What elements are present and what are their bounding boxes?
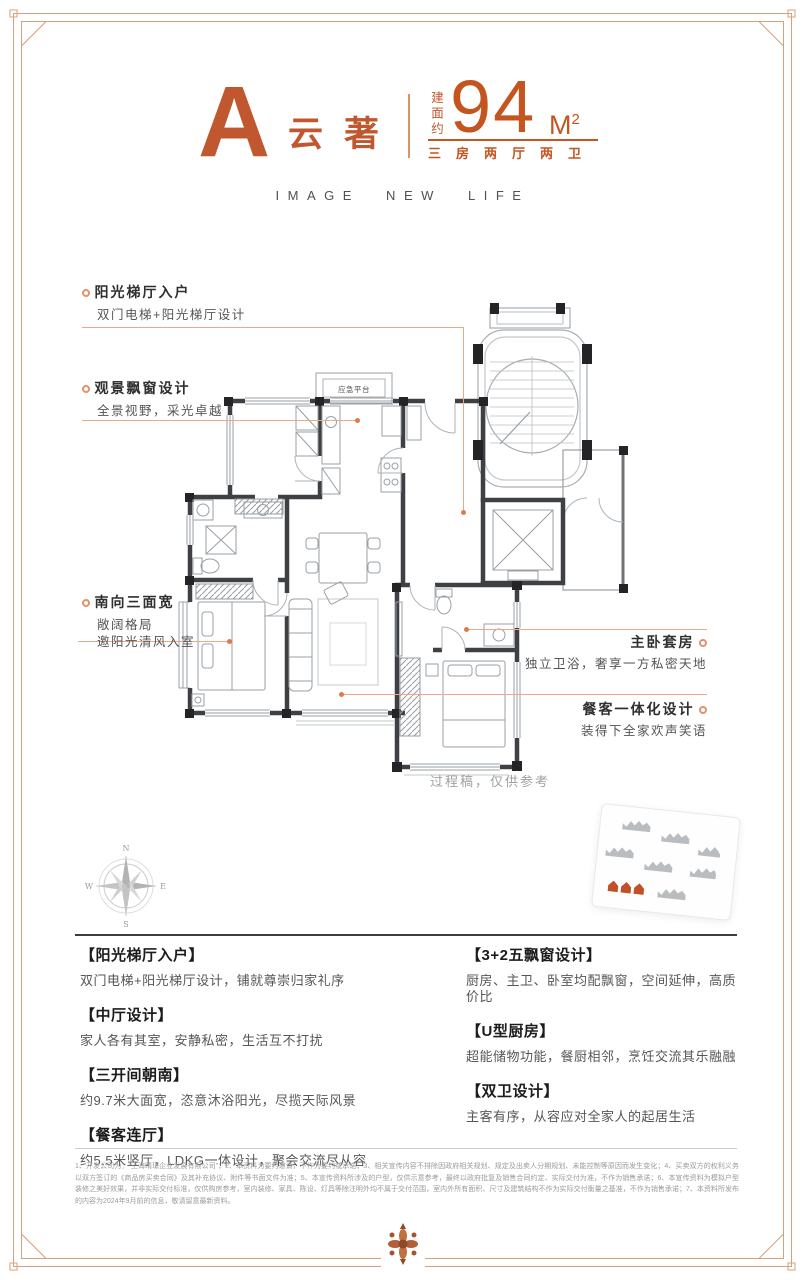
corridor xyxy=(563,450,623,590)
compass-w: W xyxy=(85,882,94,891)
section-divider-top xyxy=(75,934,737,936)
site-map-highlight-building xyxy=(608,880,645,895)
callout-entry-lobby: 阳光梯厅入户 双门电梯+阳光梯厅设计 xyxy=(82,282,246,324)
leader-4-dot xyxy=(464,627,469,632)
poster-page: A 云著 建面约 94 M2 三房两厅两卫 IMAGE NEW LIFE xyxy=(0,0,805,1280)
feature-item: 【中厅设计】 家人各有其室，安静私密，生活互不打扰 xyxy=(80,1004,440,1049)
legal-disclaimer: 1、开发公司为：“上海晴璟企业发展有限公司”；2、本资料为要约邀请，不作为要约或… xyxy=(75,1161,739,1207)
leader-5-dot xyxy=(339,692,344,697)
callout-ring-icon xyxy=(699,706,707,714)
compass-n: N xyxy=(123,844,130,853)
area-value: 94 xyxy=(450,70,536,144)
feature-item: 【双卫设计】 主客有序，从容应对全家人的起居生活 xyxy=(466,1080,744,1125)
brand-emblem xyxy=(381,1220,425,1268)
callout-ring-icon xyxy=(82,289,90,297)
leader-5-h xyxy=(341,694,707,695)
feature-item: 【三开间朝南】 约9.7米大面宽，恣意沐浴阳光，尽揽天际风景 xyxy=(80,1064,440,1109)
callout-ring-icon xyxy=(82,599,90,607)
flower-ornament-icon xyxy=(384,1223,422,1265)
elevator xyxy=(483,500,563,583)
compass-e: E xyxy=(160,882,166,891)
callout-ring-icon xyxy=(699,639,707,647)
leader-1-dot xyxy=(461,510,466,515)
stair-tower xyxy=(478,308,587,487)
compass-rose: N S W E xyxy=(84,842,168,930)
callout-ring-icon xyxy=(82,385,90,393)
area-prefix: 建面约 xyxy=(429,91,443,138)
leader-1-h xyxy=(82,327,463,328)
leader-2-dot xyxy=(355,418,360,423)
feature-item: 【U型厨房】 超能储物功能，餐厨相邻，烹饪交流其乐融融 xyxy=(466,1020,744,1065)
tagline: IMAGE NEW LIFE xyxy=(276,188,530,203)
leader-4-h xyxy=(466,629,707,630)
area-unit-sup: 2 xyxy=(572,111,580,128)
feature-column-left: 【阳光梯厅入户】 双门电梯+阳光梯厅设计，铺就尊崇归家礼序 【中厅设计】 家人各… xyxy=(80,944,440,1184)
plan-name: 云著 xyxy=(288,106,400,157)
leader-3-dot xyxy=(227,639,232,644)
wardrobes xyxy=(196,499,420,736)
feature-column-right: 【3+2五飘窗设计】 厨房、主卫、卧室均配飘窗，空间延伸，高质价比 【U型厨房】… xyxy=(466,944,744,1140)
area-underline xyxy=(428,139,598,141)
callout-south-facing: 南向三面宽 敞阔格局 邀阳光清风入室 xyxy=(82,592,195,651)
callout-bay-window: 观景飘窗设计 全景视野，采光卓越 xyxy=(82,378,223,420)
area-unit: M2 xyxy=(549,110,580,141)
layout-text: 三房两厅两卫 xyxy=(428,143,600,162)
plan-letter: A xyxy=(198,72,270,172)
emergency-platform-label: 应急平台 xyxy=(338,384,370,394)
floor-plan: 应急平台 xyxy=(160,300,650,790)
callout-master-suite: 主卧套房 独立卫浴，奢享一方私密天地 xyxy=(525,632,707,673)
furniture xyxy=(192,406,514,747)
feature-item: 【3+2五飘窗设计】 厨房、主卫、卧室均配飘窗，空间延伸，高质价比 xyxy=(466,944,744,1005)
feature-item: 【阳光梯厅入户】 双门电梯+阳光梯厅设计，铺就尊崇归家礼序 xyxy=(80,944,440,989)
callout-dining-living: 餐客一体化设计 装得下全家欢声笑语 xyxy=(581,699,707,740)
draft-note: 过程稿，仅供参考 xyxy=(430,771,550,790)
header-divider xyxy=(408,94,410,158)
compass-s: S xyxy=(123,920,128,929)
site-map xyxy=(591,803,741,921)
leader-1-v xyxy=(463,327,464,512)
leader-2-h xyxy=(82,420,355,421)
